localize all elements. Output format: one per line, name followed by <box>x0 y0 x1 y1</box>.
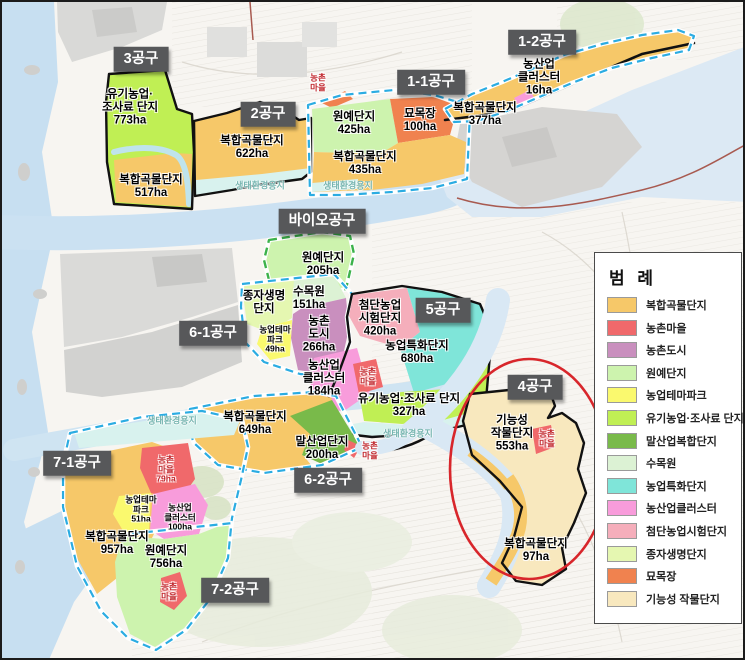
district-label: 1-2공구 <box>508 30 576 55</box>
eco-land-label: 생태환경용지 <box>235 179 285 192</box>
zone-label: 첨단농업시험단지420ha <box>359 300 401 339</box>
district-label: 5공구 <box>416 298 471 323</box>
legend-item-label: 농산업클러스터 <box>646 500 717 516</box>
planning-map: 3공구2공구1-1공구1-2공구바이오공구6-1공구5공구4공구7-1공구6-2… <box>0 0 745 660</box>
eco-land-label: 생태환경용지 <box>323 179 373 192</box>
zone-label: 원예단지205ha <box>302 252 344 278</box>
legend-item-label: 수목원 <box>646 455 676 471</box>
legend-item: 농촌도시 <box>607 342 731 358</box>
district-label: 2공구 <box>241 102 296 127</box>
zone-label: 농촌도시266ha <box>303 316 336 355</box>
zone-label: 기능성작물단지553ha <box>491 415 533 454</box>
zone-label: 수목원151ha <box>293 286 326 312</box>
district-label: 4공구 <box>508 375 563 400</box>
legend-item: 원예단지 <box>607 365 731 381</box>
legend-item: 유기농업·조사료 단지 <box>607 410 731 426</box>
legend-item: 기능성 작물단지 <box>607 591 731 607</box>
zone-label: 종자생명단지 <box>243 290 285 316</box>
district-label: 6-1공구 <box>179 321 247 346</box>
legend-item-label: 농촌마을 <box>646 320 686 336</box>
legend-item: 농업테마파크 <box>607 387 731 403</box>
legend-swatch <box>607 320 637 336</box>
legend-item-label: 기능성 작물단지 <box>646 591 720 607</box>
legend-item-label: 첨단농업시험단지 <box>646 523 727 539</box>
legend-swatch <box>607 342 637 358</box>
district-label: 1-1공구 <box>397 70 465 95</box>
legend-swatch <box>607 365 637 381</box>
zone-label: 농업테마파크49ha <box>259 326 290 355</box>
legend-swatch <box>607 455 637 471</box>
legend-item-label: 복합곡물단지 <box>646 297 707 313</box>
legend: 범 례 복합곡물단지농촌마을농촌도시원예단지농업테마파크유기농업·조사료 단지말… <box>594 252 742 624</box>
legend-item: 첨단농업시험단지 <box>607 523 731 539</box>
district-label: 바이오공구 <box>279 209 366 234</box>
legend-swatch <box>607 500 637 516</box>
zone-label: 농촌마을 <box>310 73 326 92</box>
legend-item-label: 유기농업·조사료 단지 <box>646 410 744 426</box>
zone-label: 농업특화단지680ha <box>385 340 448 366</box>
legend-item-label: 농업특화단지 <box>646 478 707 494</box>
legend-item: 종자생명단지 <box>607 546 731 562</box>
legend-item: 복합곡물단지 <box>607 297 731 313</box>
zone-label: 농업테마파크51ha <box>125 496 156 525</box>
zone-label: 농촌마을 <box>362 441 378 460</box>
eco-land-label: 생태환경용지 <box>147 414 197 427</box>
legend-swatch <box>607 591 637 607</box>
legend-swatch <box>607 387 637 403</box>
zone-label: 농산업클러스터184ha <box>303 360 345 399</box>
zone-label: 원예단지425ha <box>333 111 375 137</box>
legend-item-label: 원예단지 <box>646 365 686 381</box>
legend-items: 복합곡물단지농촌마을농촌도시원예단지농업테마파크유기농업·조사료 단지말산업복합… <box>607 297 731 607</box>
legend-swatch <box>607 568 637 584</box>
district-label: 3공구 <box>114 47 169 72</box>
zone-label: 복합곡물단지649ha <box>223 411 286 437</box>
legend-swatch <box>607 478 637 494</box>
zone-label: 묘목장100ha <box>404 108 437 134</box>
zone-label: 농산업클러스터100ha <box>164 504 195 533</box>
zone-label: 복합곡물단지622ha <box>220 135 283 161</box>
zone-label: 유기농업·조사료 단지327ha <box>358 393 460 419</box>
zone-label: 농촌마을79ha <box>156 456 175 485</box>
zone-label: 농산업클러스터16ha <box>518 59 560 98</box>
legend-swatch <box>607 523 637 539</box>
legend-item-label: 농촌도시 <box>646 342 686 358</box>
legend-item-label: 묘목장 <box>646 568 676 584</box>
zone-label: 말산업단지200ha <box>296 436 349 462</box>
legend-swatch <box>607 433 637 449</box>
legend-swatch <box>607 297 637 313</box>
zone-label: 복합곡물단지957ha <box>85 531 148 557</box>
zone-label: 농촌마을 <box>539 429 555 448</box>
legend-swatch <box>607 410 637 426</box>
eco-land-label: 생태환경용지 <box>383 427 433 440</box>
legend-item-label: 농업테마파크 <box>646 387 707 403</box>
legend-item: 묘목장 <box>607 568 731 584</box>
legend-title: 범 례 <box>609 264 731 289</box>
zone-label: 원예단지756ha <box>145 545 187 571</box>
zone-label: 복합곡물단지517ha <box>119 174 182 200</box>
legend-item-label: 말산업복합단지 <box>646 433 717 449</box>
zone-label: 농촌마을 <box>161 582 177 601</box>
legend-item: 농업특화단지 <box>607 478 731 494</box>
legend-item: 말산업복합단지 <box>607 433 731 449</box>
zone-label: 복합곡물단지377ha <box>453 102 516 128</box>
zone-label: 복합곡물단지97ha <box>504 538 567 564</box>
zone-label: 유기농업·조사료 단지773ha <box>102 89 158 128</box>
legend-swatch <box>607 546 637 562</box>
district-label: 7-2공구 <box>201 578 269 603</box>
zone-label: 농촌마을 <box>360 367 376 386</box>
district-label: 7-1공구 <box>43 451 111 476</box>
legend-item: 수목원 <box>607 455 731 471</box>
zone-label: 복합곡물단지435ha <box>333 151 396 177</box>
legend-item-label: 종자생명단지 <box>646 546 707 562</box>
district-label: 6-2공구 <box>294 468 362 493</box>
legend-item: 농촌마을 <box>607 320 731 336</box>
legend-item: 농산업클러스터 <box>607 500 731 516</box>
